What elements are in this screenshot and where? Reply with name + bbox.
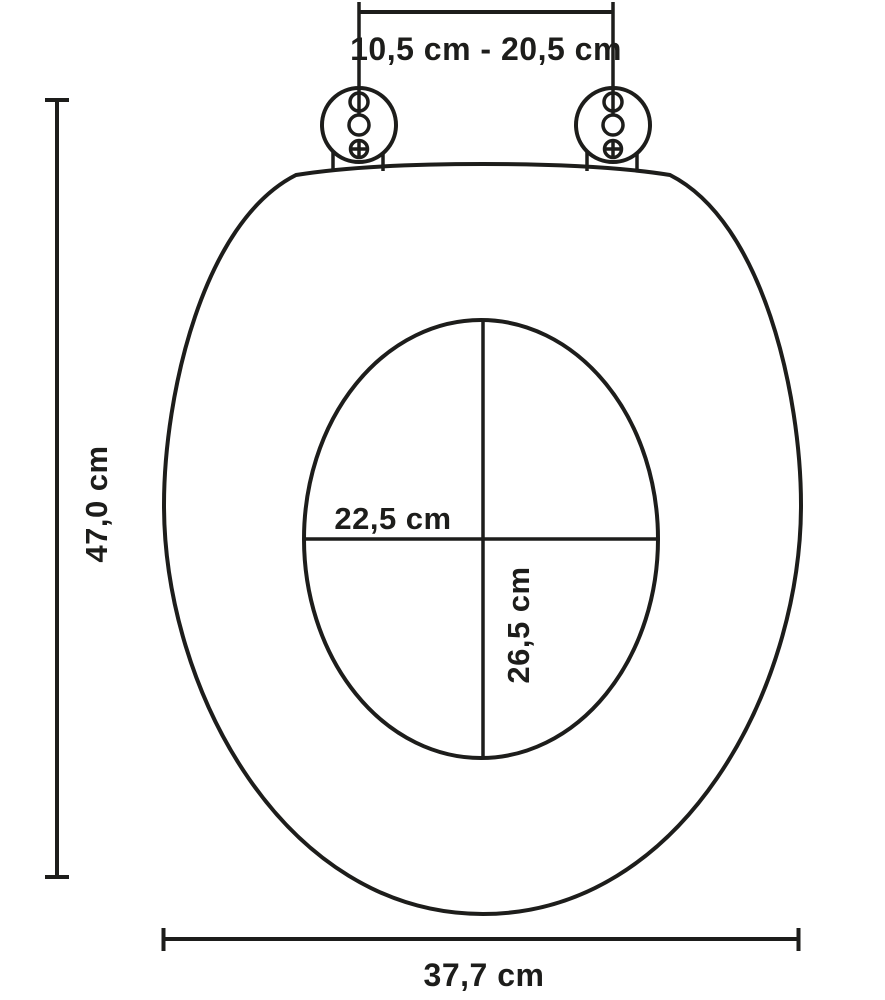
screw-cross-icon (351, 141, 368, 158)
toilet-seat-dimension-diagram: 10,5 cm - 20,5 cm 47,0 cm 22,5 cm 26,5 c… (0, 0, 885, 1000)
seat-length-label: 47,0 cm (79, 445, 114, 562)
hinge-left (322, 2, 396, 171)
inner-width-label: 22,5 cm (334, 501, 451, 536)
seat-length-dimension: 47,0 cm (45, 100, 114, 877)
inner-length-label: 26,5 cm (501, 566, 536, 683)
diagram-drawing: 10,5 cm - 20,5 cm 47,0 cm 22,5 cm 26,5 c… (0, 0, 885, 1000)
hinge-pin-middle (603, 115, 623, 135)
screw-cross-icon (605, 141, 622, 158)
hinge-pin-middle (349, 115, 369, 135)
hinge-spacing-label: 10,5 cm - 20,5 cm (350, 31, 622, 67)
seat-body (164, 164, 801, 914)
hinge-right (576, 2, 650, 171)
seat-width-label: 37,7 cm (424, 957, 545, 993)
seat-width-dimension: 37,7 cm (162, 928, 800, 993)
hinge-spacing-dimension: 10,5 cm - 20,5 cm (350, 12, 622, 67)
